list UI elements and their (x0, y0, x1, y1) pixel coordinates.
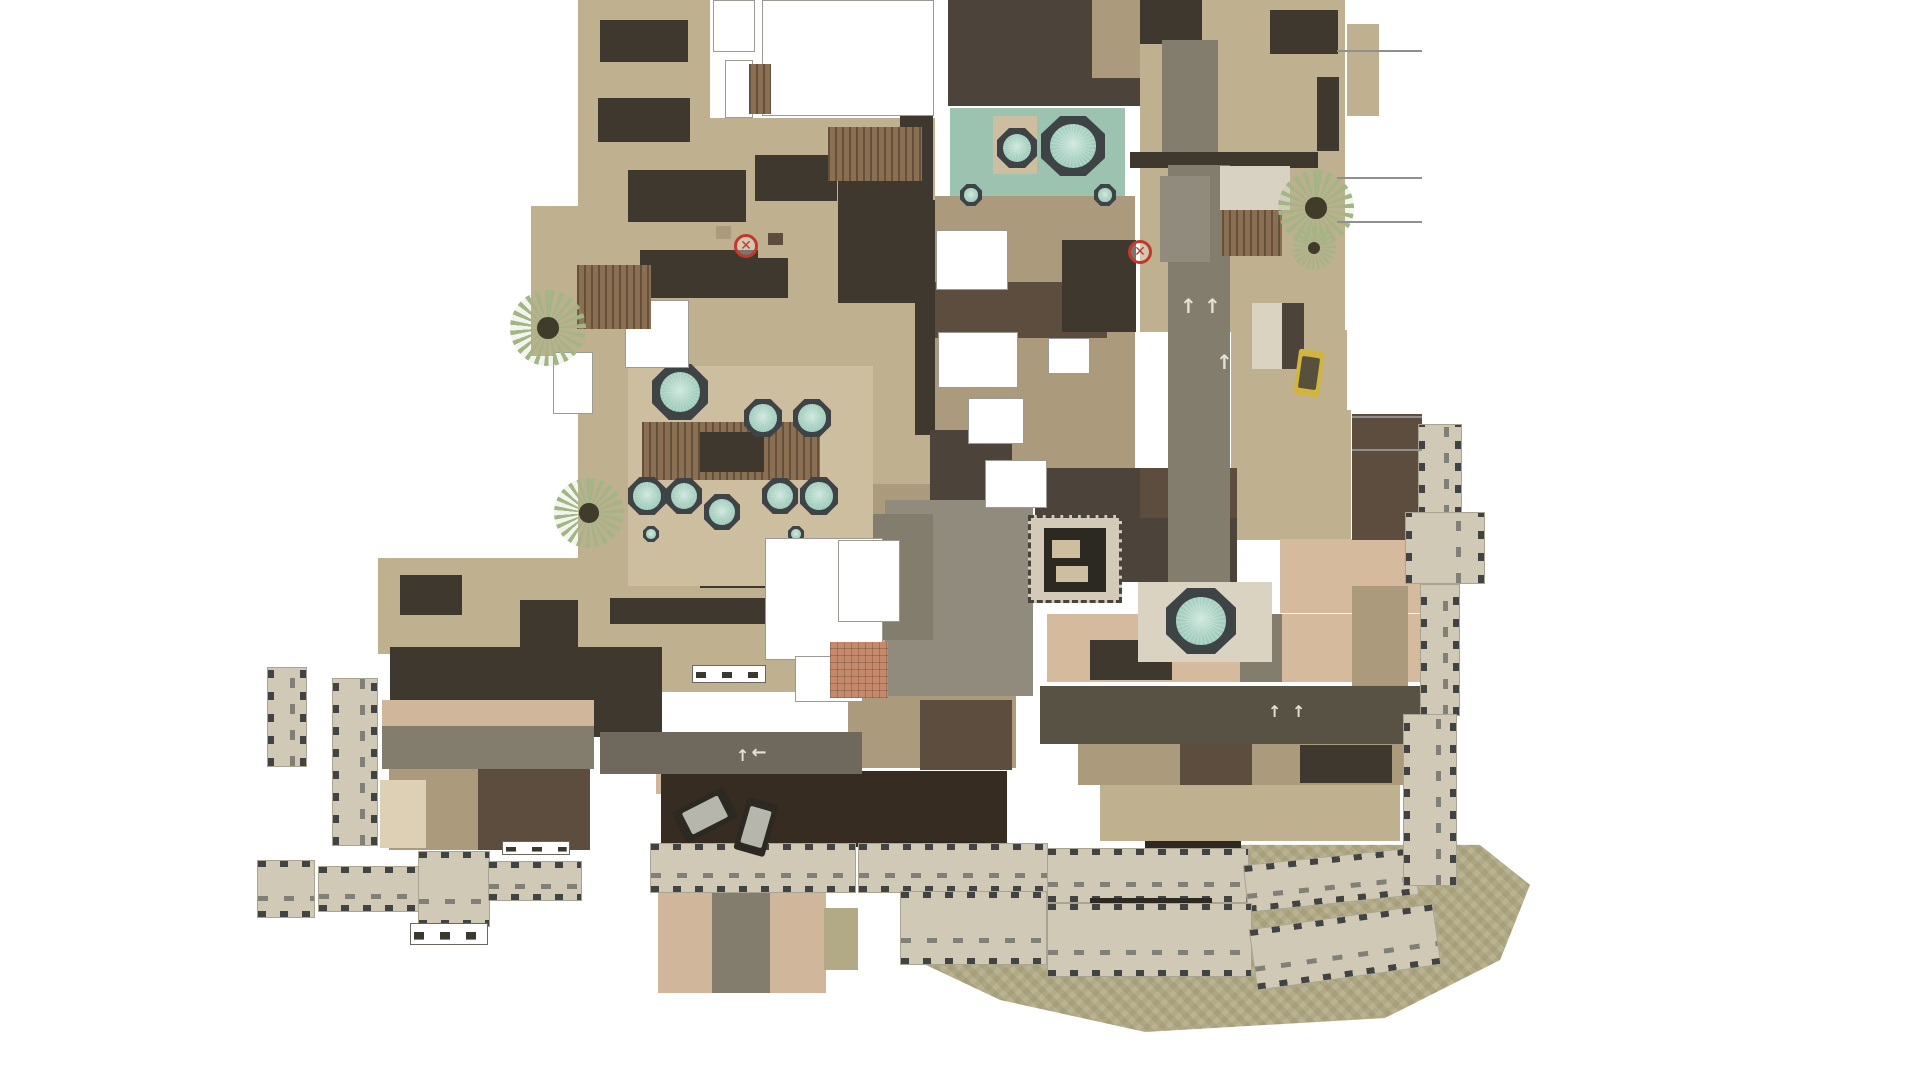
taxi-roof (1298, 356, 1321, 390)
palm-tree-2 (554, 478, 624, 548)
courtyard-tile-2 (1056, 566, 1088, 582)
palm-tree-1-trunk (537, 317, 558, 338)
road-arrow-1: ↑ (1180, 296, 1194, 316)
palace-dome-g (800, 477, 838, 515)
wall-bottom-1 (858, 843, 1048, 893)
leader-line-5 (1352, 449, 1422, 451)
bath-knob-2 (1094, 184, 1116, 206)
palace-court-shadow (700, 432, 764, 472)
bath-dome-large-water (1050, 124, 1096, 167)
leader-line-1 (1337, 50, 1422, 52)
palace-dome-b (744, 399, 782, 437)
fountain-dome-water (1176, 597, 1226, 645)
balcony-3 (692, 665, 766, 683)
road-topright-2 (1160, 176, 1210, 262)
wood-strip-2 (749, 64, 771, 114)
awning-wood-roof (1222, 210, 1282, 256)
edge-shadow-mid (915, 200, 935, 435)
road-arrow-3: ↑ (1216, 352, 1230, 372)
road-bottom-vertical (712, 893, 770, 993)
balcony-1 (502, 841, 570, 855)
no-entry-marker-2: ✕ (1128, 240, 1152, 264)
wall-bottomleft-2 (488, 861, 582, 901)
palace-knob-1-water (646, 529, 656, 539)
bath-knob-1-water (964, 188, 977, 201)
roof-shadow-2 (598, 98, 690, 142)
wall-left-vertical (332, 678, 378, 846)
white-room-3 (1048, 338, 1090, 374)
white-room-1 (936, 230, 1008, 290)
palace-dome-a (652, 364, 708, 420)
shadow-topright-2 (1317, 77, 1339, 151)
shadow-left-1 (400, 575, 462, 615)
road-arrow-5: ↑ (736, 748, 748, 764)
palace-knob-1 (643, 526, 659, 542)
palace-dome-c (793, 399, 831, 437)
white-room-5 (985, 460, 1047, 508)
truck-roof (740, 806, 772, 849)
palm-tree-2-trunk (579, 503, 599, 523)
wall-bottomleft-tower (418, 851, 490, 927)
crate-2 (736, 258, 752, 271)
street-left (382, 725, 594, 769)
fountain-dome (1166, 588, 1236, 654)
wall-left-piece (267, 667, 307, 767)
crate-3 (768, 233, 783, 245)
balcony-2 (410, 923, 488, 945)
leader-line-4 (1352, 416, 1422, 418)
tan-strip-far-topright (1347, 24, 1379, 116)
white-roof-cutout-top (762, 0, 934, 116)
roof-shadow-1 (600, 20, 688, 62)
leader-line-3 (1337, 221, 1422, 223)
tan-wedge-top (1092, 0, 1140, 78)
bath-knob-2-water (1098, 188, 1111, 201)
wood-strip-1 (828, 127, 922, 181)
tan-block-right2 (1231, 410, 1351, 540)
courtyard-interior (1044, 528, 1106, 592)
roof-shadow-3 (628, 170, 746, 222)
palace-dome-f-water (767, 483, 793, 509)
gate-building (380, 780, 426, 848)
map-overview-canvas: ✕✕↑↑↑←↑↑↑ (0, 0, 1920, 1080)
palm-tree-4 (1292, 226, 1336, 270)
palace-dome-h-water (709, 499, 735, 525)
palace-dome-e (666, 478, 702, 514)
palm-tree-4-trunk (1308, 242, 1320, 254)
palace-dome-b-water (749, 404, 776, 431)
dark-belowroad (1180, 741, 1252, 785)
bldg-below-street-b (478, 768, 590, 850)
road-arrow-2: ↑ (1204, 296, 1218, 316)
white-room-4 (968, 398, 1024, 444)
road-arrow-7: ↑ (1292, 704, 1304, 720)
wall-right-upper (1418, 424, 1462, 516)
road-right-horiz (1040, 686, 1440, 744)
shadow-left-2 (520, 600, 578, 648)
wall-right-tower (1405, 512, 1485, 584)
palace-dome-a-water (660, 372, 700, 412)
palace-dome-d-water (633, 482, 660, 509)
no-entry-marker-1: ✕ (734, 234, 758, 258)
road-arrow-4: ← (750, 744, 768, 762)
shadow-topright-1 (1270, 10, 1338, 54)
white-roof-right (838, 540, 900, 622)
white-room-2 (938, 332, 1018, 388)
roof-shadow-7 (640, 258, 788, 298)
shadow-belowroad (1300, 745, 1392, 783)
palace-dome-d (628, 477, 666, 515)
road-left-horiz (600, 732, 862, 774)
wall-bottomleft-far (257, 860, 315, 918)
wall-lower-1 (900, 891, 1047, 965)
shadow-topright-4 (1140, 0, 1202, 44)
palace-dome-f (762, 478, 798, 514)
bath-dome-small-water (1003, 134, 1032, 163)
dark-mid-2 (1062, 240, 1136, 332)
bldg-bottom-right2 (1100, 785, 1400, 841)
road-arrow-6: ↑ (1268, 704, 1280, 720)
courtyard-tile-1 (1052, 540, 1080, 558)
palace-dome-h (704, 494, 740, 530)
dark-bldg-bottomleft (920, 700, 1012, 770)
wall-lower-2 (1047, 903, 1252, 977)
palm-tree-1 (510, 290, 586, 366)
palace-dome-c-water (798, 404, 825, 431)
skylight-1 (713, 0, 755, 52)
wall-right-lower (1403, 714, 1457, 886)
scaffold (577, 265, 651, 329)
wall-bottom-2 (1047, 848, 1249, 903)
palace-dome-g-water (805, 482, 832, 509)
road-topright-1 (1162, 40, 1218, 152)
leader-line-2 (1337, 177, 1422, 179)
roof-shadow-4 (755, 155, 837, 201)
sidewalk-left (382, 700, 594, 726)
rocky-patch-small (824, 908, 858, 970)
terracotta-roof (830, 642, 888, 698)
crate-1 (716, 226, 731, 239)
wall-right-mid (1420, 584, 1460, 716)
bath-dome-small (997, 128, 1037, 168)
palace-dome-e-water (671, 483, 697, 509)
palm-tree-3-trunk (1305, 197, 1326, 218)
